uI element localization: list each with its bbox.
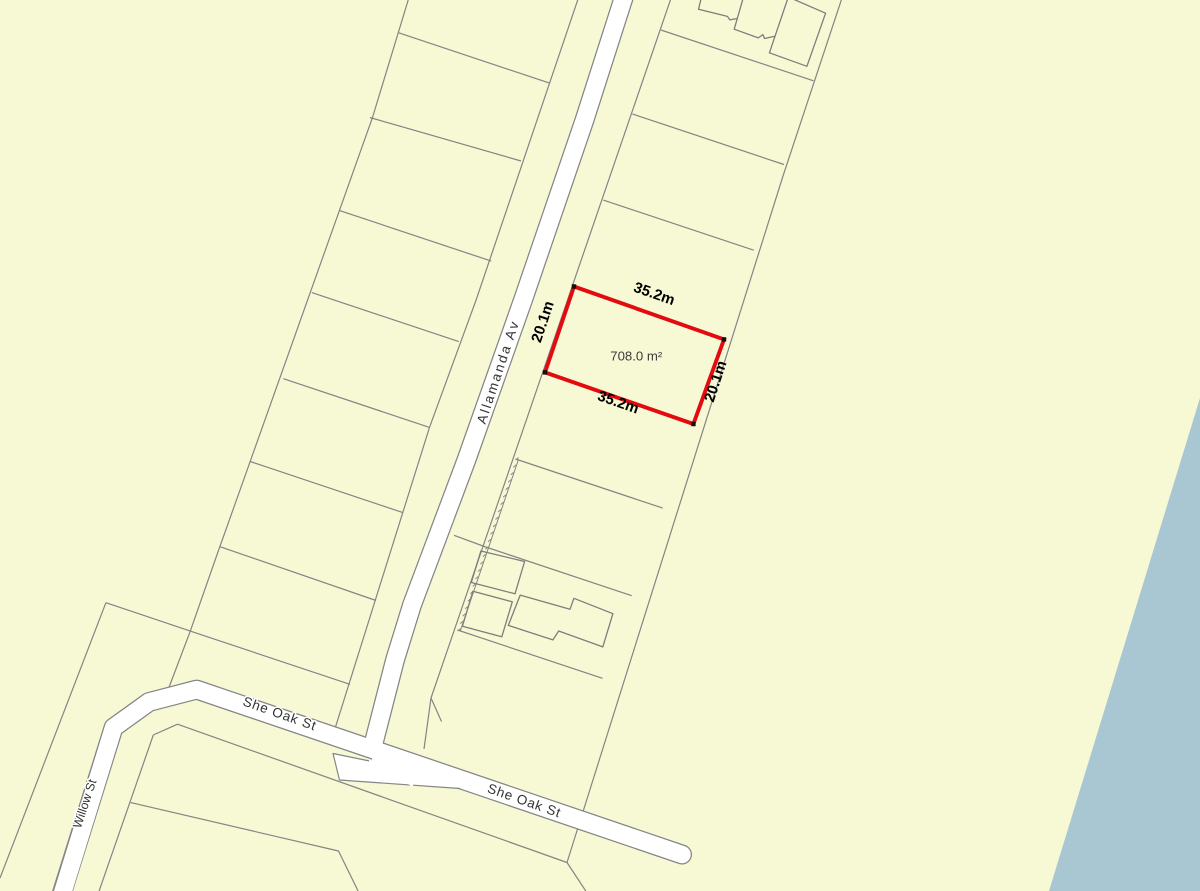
svg-text:708.0 m²: 708.0 m² [610,349,663,364]
